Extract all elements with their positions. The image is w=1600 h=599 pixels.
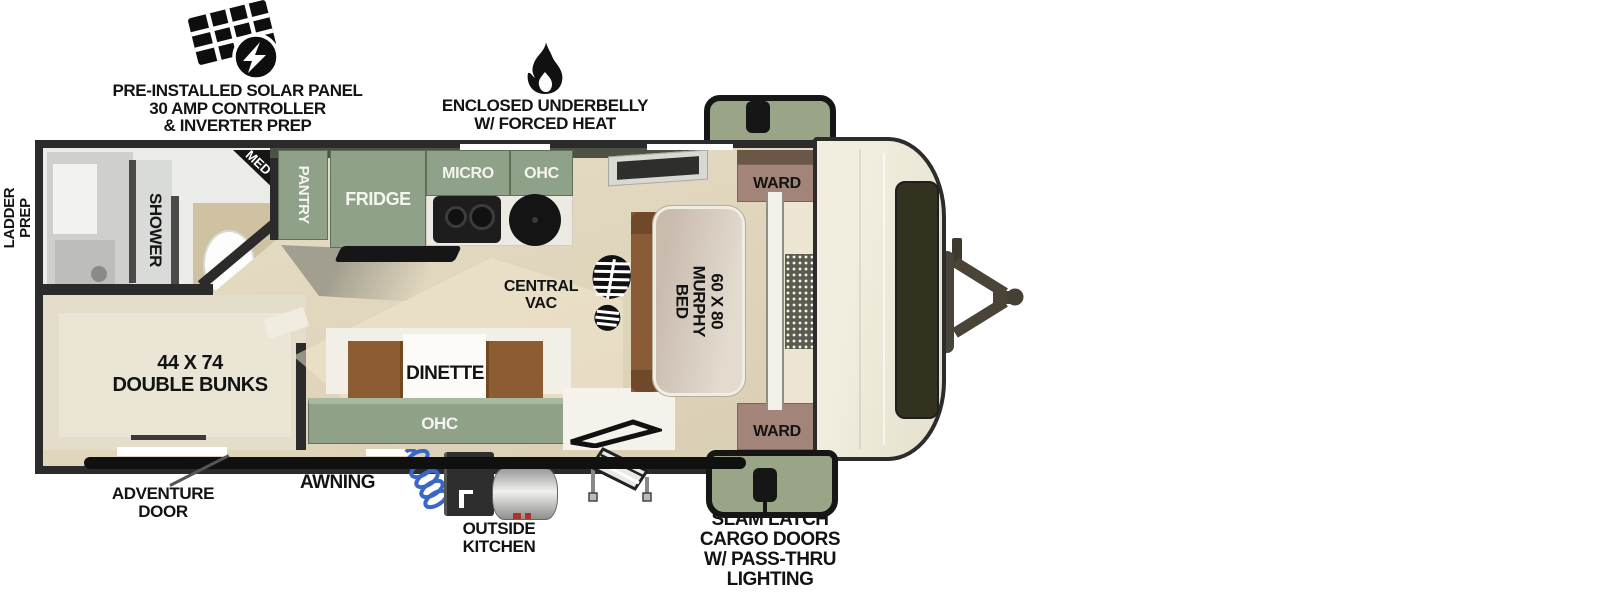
adventure-door-opening xyxy=(117,447,227,456)
ward-top-shelf xyxy=(737,150,817,164)
microwave-cabinet: MICRO xyxy=(426,150,510,196)
solar-panel-icon xyxy=(180,0,288,84)
faucet-icon xyxy=(459,494,464,508)
entry-door-swing xyxy=(567,418,662,448)
pantry-cabinet: PANTRY xyxy=(278,150,328,240)
dinette-ohc-label: OHC xyxy=(421,415,458,433)
ward-label: WARD xyxy=(753,175,801,192)
vent-glass xyxy=(617,156,699,180)
dinette-label: DINETTE xyxy=(395,364,495,384)
bathroom-wall xyxy=(43,284,213,295)
ward-label: WARD xyxy=(753,423,801,440)
ceiling-vent xyxy=(608,150,708,187)
burner xyxy=(445,206,467,228)
cap-seam xyxy=(859,149,861,449)
overhead-cabinet-dinette: OHC xyxy=(308,398,571,444)
cargo-door-latch xyxy=(746,101,770,133)
bed-divider-wall xyxy=(766,192,784,410)
window-top xyxy=(460,144,550,150)
murphy-bed-label: 60 X 80 MURPHY BED xyxy=(673,258,726,344)
shower-label: SHOWER xyxy=(142,170,164,290)
fridge: FRIDGE xyxy=(330,150,426,248)
fridge-shadow xyxy=(334,246,461,262)
stove xyxy=(433,196,501,243)
fridge-label: FRIDGE xyxy=(345,189,411,210)
cargo-door-latch xyxy=(753,468,777,502)
awning-label: AWNING xyxy=(290,473,385,493)
awning-bar xyxy=(84,457,746,469)
murphy-bed: 60 X 80 MURPHY BED xyxy=(653,206,745,396)
overhead-cabinet-kitchen: OHC xyxy=(510,150,573,196)
bath-sink xyxy=(91,266,107,282)
shower-door-rail xyxy=(129,160,136,283)
cargo-door-handle xyxy=(763,502,767,512)
slam-latch-callout: SLAM LATCH CARGO DOORS W/ PASS-THRU LIGH… xyxy=(695,510,845,590)
bathroom: SHOWER xyxy=(43,148,279,295)
bath-vanity-top xyxy=(53,164,97,234)
underbelly-callout: ENCLOSED UNDERBELLY W/ FORCED HEAT xyxy=(400,97,690,132)
floorplan-diagram: PRE-INSTALLED SOLAR PANEL 30 AMP CONTROL… xyxy=(0,0,1600,599)
micro-label: MICRO xyxy=(442,165,494,182)
outside-kitchen-tank xyxy=(492,468,558,520)
adventure-door-callout: ADVENTURE DOOR xyxy=(98,485,228,520)
pantry-label: PANTRY xyxy=(295,166,311,224)
bath-cabinet xyxy=(55,240,115,286)
burner xyxy=(469,204,495,230)
solar-prep-callout: PRE-INSTALLED SOLAR PANEL 30 AMP CONTROL… xyxy=(95,82,380,135)
central-vac-label: CENTRAL VAC xyxy=(495,278,587,312)
front-cap xyxy=(813,137,946,461)
bunk-floor-mark xyxy=(131,435,206,440)
trailer-body: SHOWER MED 44 X 74 DOUBLE BUNKS PANTRY F… xyxy=(35,140,826,474)
window-top xyxy=(647,144,733,150)
shower-door-rail xyxy=(171,196,179,284)
kitchen-sink xyxy=(509,194,561,246)
boot-print-icon xyxy=(584,251,636,335)
entry-steps xyxy=(583,447,668,503)
sink-drain xyxy=(532,217,538,223)
double-bunks-label: 44 X 74 DOUBLE BUNKS xyxy=(90,352,290,396)
front-window xyxy=(895,181,939,419)
cap-seam xyxy=(883,153,885,445)
ohc-label: OHC xyxy=(524,165,559,182)
outside-kitchen-callout: OUTSIDE KITCHEN xyxy=(449,520,549,555)
bed-headboard-pad xyxy=(785,254,815,349)
wardrobe-bottom: WARD xyxy=(737,403,817,450)
flame-icon xyxy=(524,41,566,95)
